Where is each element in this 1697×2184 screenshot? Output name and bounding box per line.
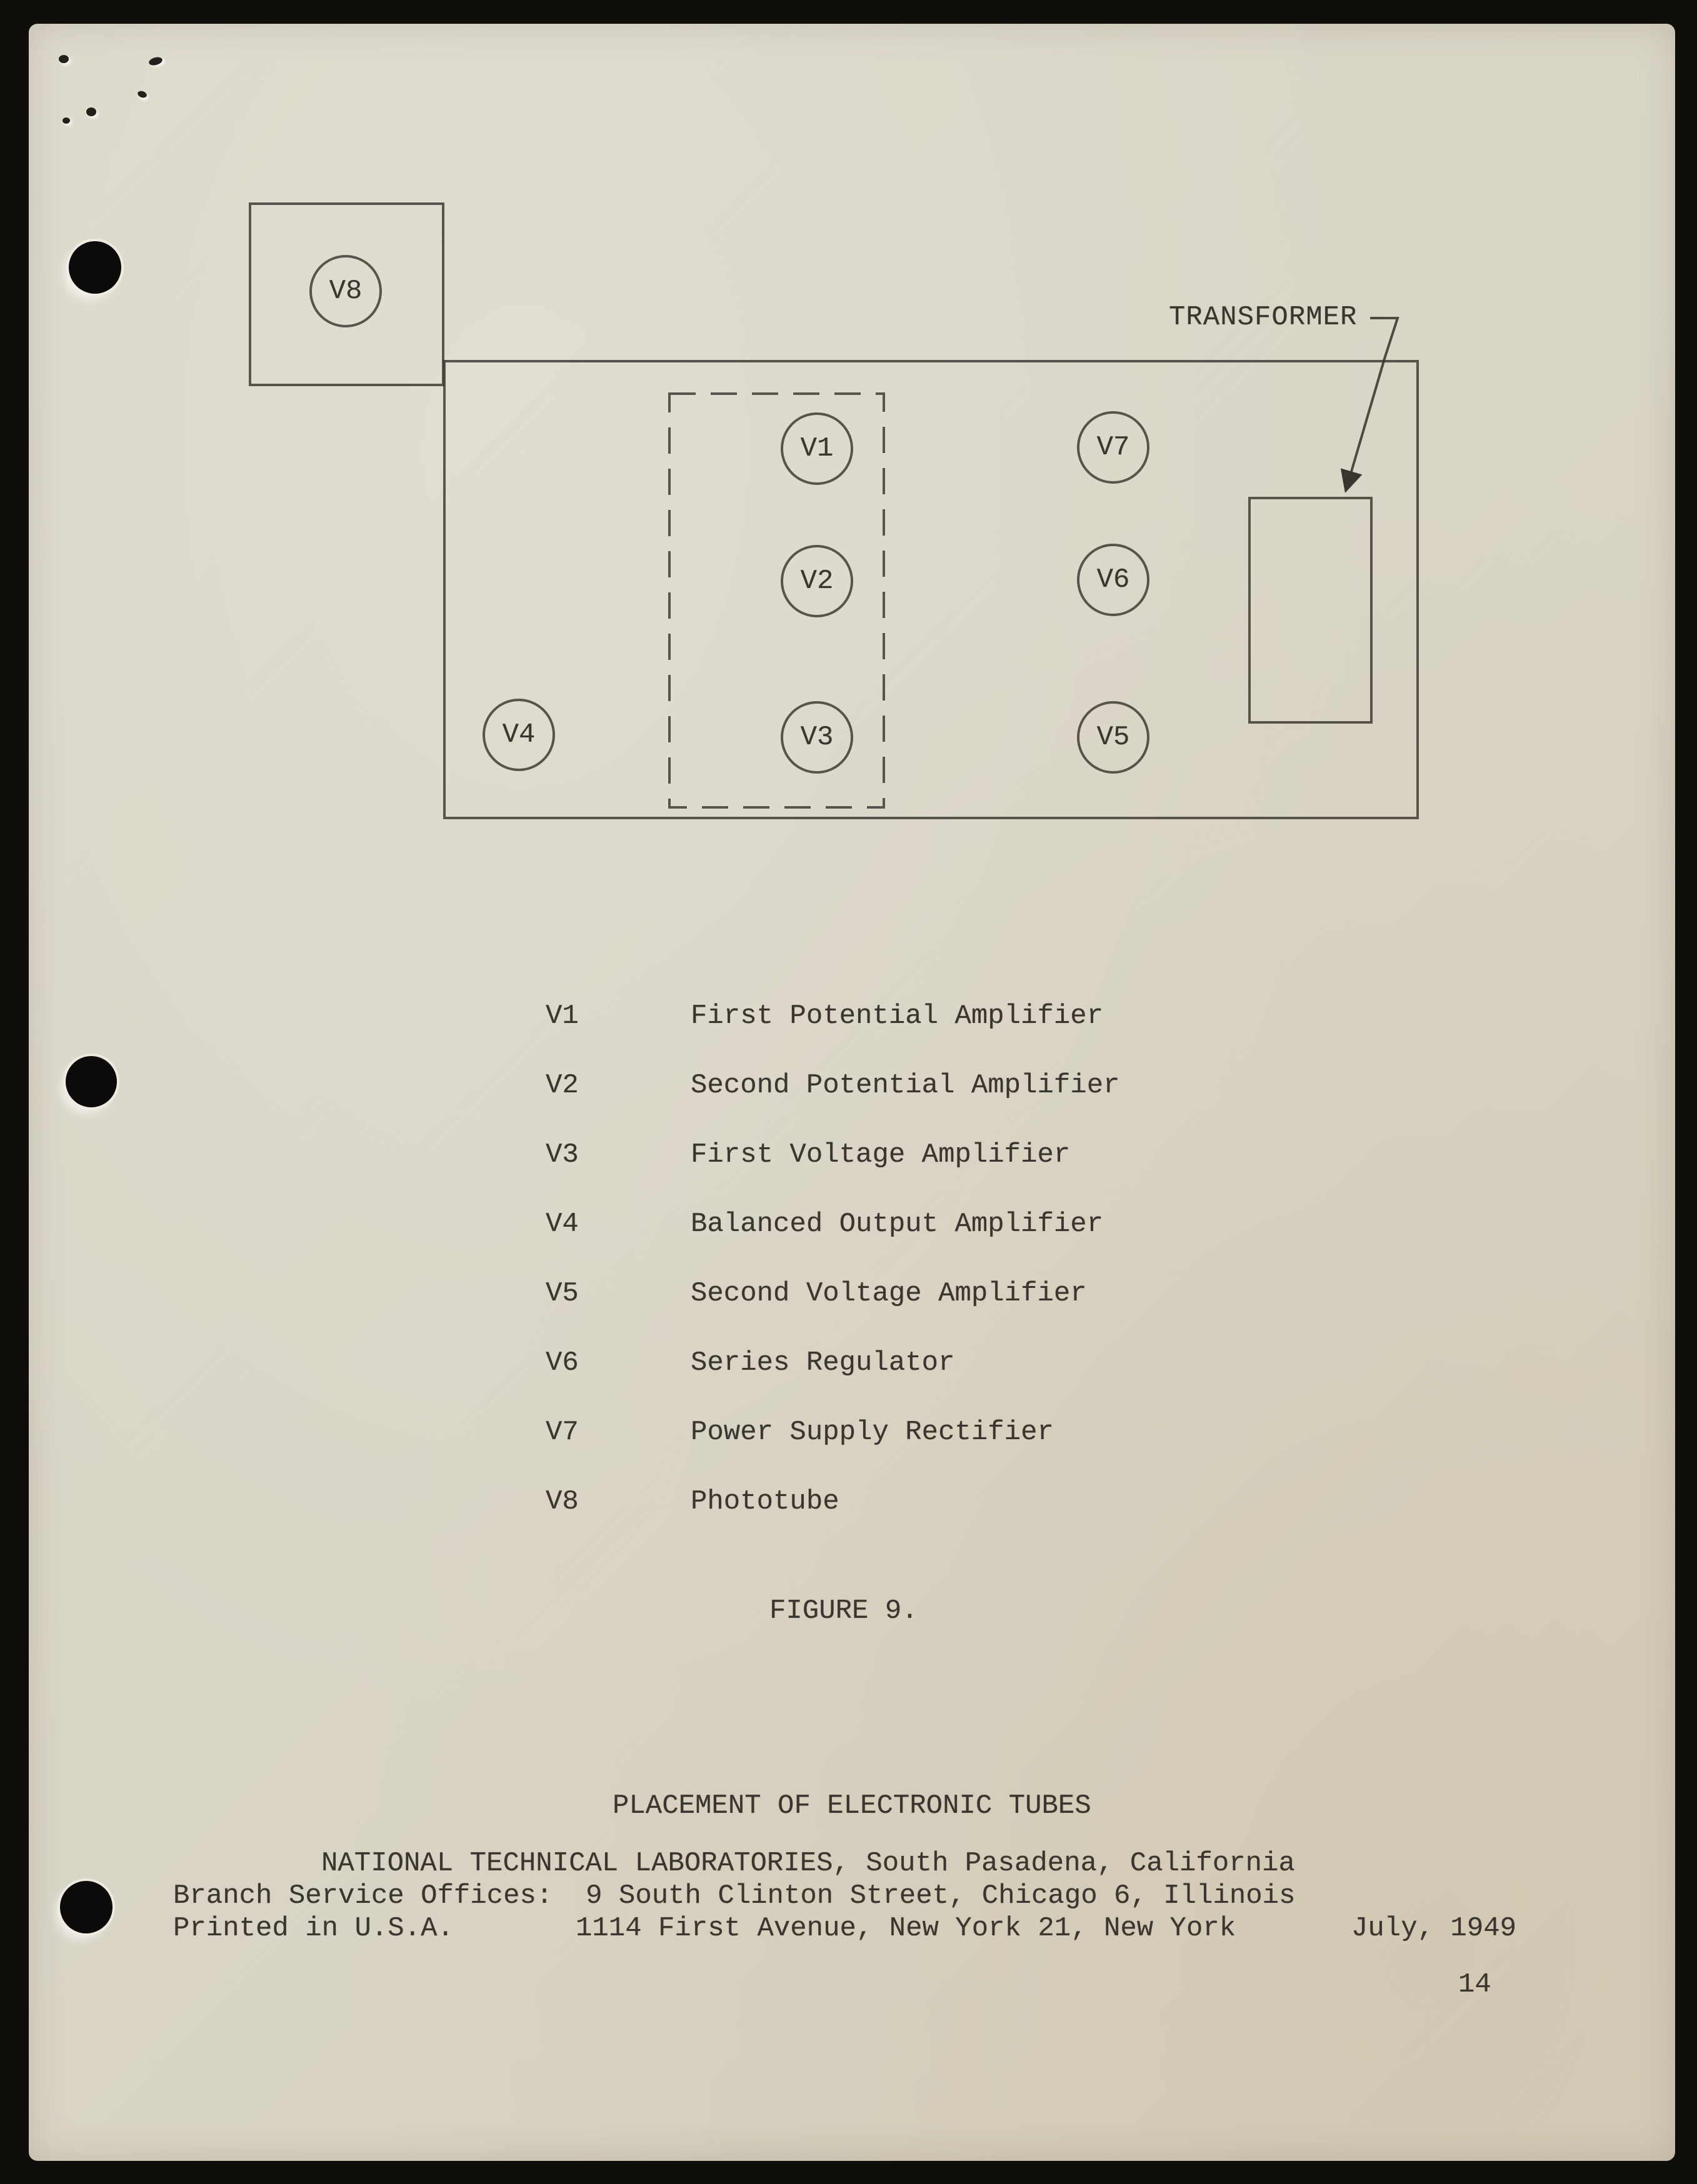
legend-tube-desc: Power Supply Rectifier [691,1417,1054,1448]
tube-v2: V2 [781,545,853,617]
tube-v8-label: V8 [329,276,363,307]
tube-v4: V4 [483,699,555,771]
legend-row: V6Series Regulator [546,1348,1120,1382]
publisher-line: NATIONAL TECHNICAL LABORATORIES, South P… [321,1848,1295,1878]
paper-damage-speck [86,107,96,116]
tube-v6: V6 [1077,544,1149,616]
legend-row: V4Balanced Output Amplifier [546,1209,1120,1244]
tube-v1-label: V1 [801,433,834,464]
legend-tube-id: V8 [546,1487,691,1517]
legend-row: V5Second Voltage Amplifier [546,1279,1120,1313]
legend-tube-desc: First Potential Amplifier [691,1000,1103,1032]
legend-row: V8Phototube [546,1487,1120,1521]
page-number: 14 [1458,1970,1491,2000]
legend-tube-desc: First Voltage Amplifier [691,1139,1070,1170]
legend-tube-desc: Series Regulator [691,1347,954,1379]
transformer-label: TRANSFORMER [1169,302,1357,332]
page-title: PLACEMENT OF ELECTRONIC TUBES [613,1791,1091,1821]
paper-damage-speck [63,117,70,124]
transformer-outline [1248,497,1373,724]
legend-tube-desc: Balanced Output Amplifier [691,1209,1103,1240]
tube-v2-label: V2 [801,566,834,597]
legend-tube-desc: Second Potential Amplifier [691,1070,1120,1101]
printed-in-usa-line: Printed in U.S.A. [173,1913,454,1943]
legend-tube-id: V1 [546,1001,691,1031]
punch-hole [66,1056,117,1107]
legend-tube-id: V7 [546,1417,691,1447]
tube-v7-label: V7 [1097,432,1130,463]
tube-legend: V1First Potential Amplifier V2Second Pot… [546,1001,1120,1556]
figure-caption: FIGURE 9. [769,1596,918,1626]
tube-v8: V8 [309,255,382,327]
tube-v1: V1 [781,412,853,485]
branch-offices-line: Branch Service Offices: 9 South Clinton … [173,1881,1296,1911]
paper-damage-speck [59,55,69,63]
tube-v7: V7 [1077,411,1149,484]
legend-tube-id: V6 [546,1348,691,1378]
legend-row: V3First Voltage Amplifier [546,1140,1120,1174]
tube-v3: V3 [781,701,853,774]
legend-row: V2Second Potential Amplifier [546,1070,1120,1105]
legend-tube-id: V4 [546,1209,691,1239]
punch-hole [60,1881,113,1933]
legend-row: V7Power Supply Rectifier [546,1417,1120,1452]
tube-v4-label: V4 [503,719,536,750]
tube-v3-label: V3 [801,722,834,753]
scanned-page-background: { "colors": { "scan_background": "#0f0e0… [0,0,1697,2184]
date-text: July, 1949 [1351,1913,1516,1943]
legend-tube-id: V2 [546,1070,691,1100]
legend-row: V1First Potential Amplifier [546,1001,1120,1035]
new-york-address-line: 1114 First Avenue, New York 21, New York [576,1913,1236,1943]
legend-tube-desc: Second Voltage Amplifier [691,1278,1087,1309]
legend-tube-id: V3 [546,1140,691,1170]
tube-v5-label: V5 [1097,722,1130,753]
legend-tube-id: V5 [546,1279,691,1309]
legend-tube-desc: Phototube [691,1486,839,1517]
punch-hole [69,241,121,294]
tube-v5: V5 [1077,701,1149,774]
tube-v6-label: V6 [1097,564,1130,596]
